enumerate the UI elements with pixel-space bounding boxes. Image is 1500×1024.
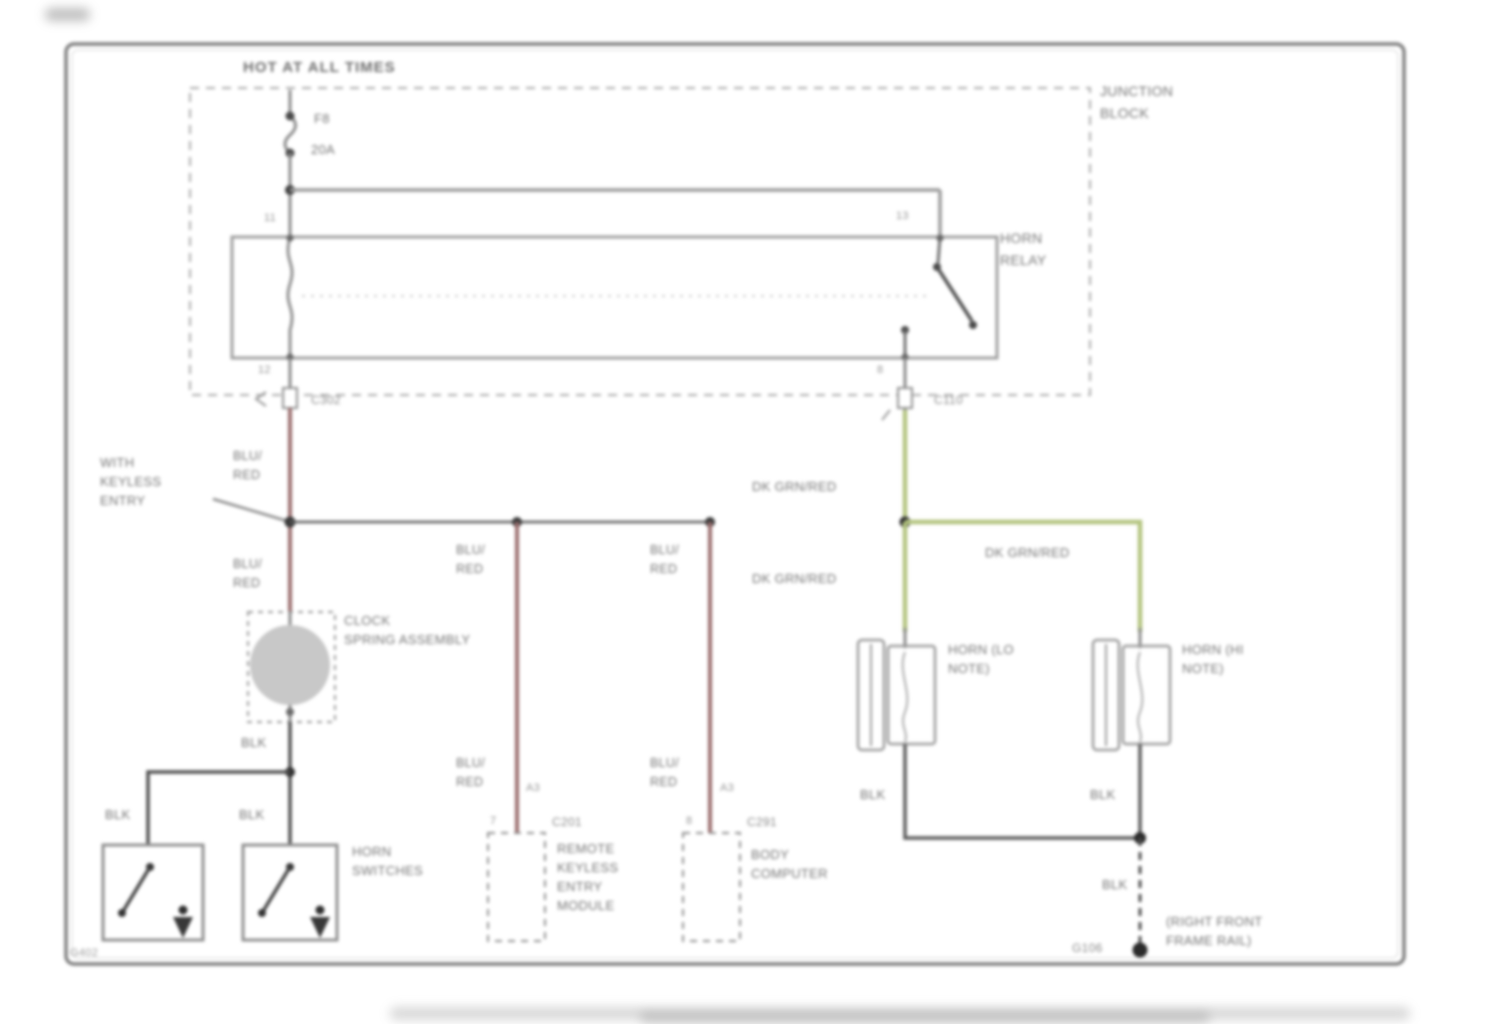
- fuse-rating-label: 20A: [311, 143, 335, 156]
- relay-pin-bottom-left-label: 12: [258, 365, 271, 376]
- wire-color-line1: BLU/: [650, 544, 679, 557]
- frame-rail-label: (RIGHT FRONT FRAME RAIL): [1166, 915, 1263, 947]
- horn-relay-label-line1: HORN: [1000, 231, 1046, 245]
- fuse-name-label: F8: [314, 112, 330, 125]
- wire-color-line1: BLU/: [233, 450, 262, 463]
- horn-switches-line1: HORN: [352, 845, 423, 858]
- horn-hi-note: [1093, 628, 1170, 750]
- horn-coil: [1138, 652, 1143, 742]
- wire-label-blk-switch-right: BLK: [239, 808, 264, 821]
- horn-feed-circuit: [900, 410, 1141, 632]
- scan-artifact: [45, 8, 90, 21]
- remote-keyless-entry-module-label: REMOTE KEYLESS ENTRY MODULE: [557, 842, 618, 912]
- connector-c110-terminal: [898, 388, 912, 408]
- relay-armature: [937, 267, 972, 321]
- wire-color-line2: RED: [233, 469, 262, 482]
- wiring-diagram-page: HOT AT ALL TIMES F8 20A JUNCTION BLOCK H…: [0, 0, 1500, 1024]
- connector-c302-terminal: [283, 388, 297, 408]
- horn-relay-label: HORN RELAY: [1000, 231, 1046, 267]
- clock-spring-line1: CLOCK: [344, 614, 470, 627]
- diagram-border-inner: [72, 50, 1398, 958]
- wire-label-blk-frame: BLK: [1102, 878, 1127, 891]
- ground-point: [1133, 943, 1148, 958]
- module-pin-right-label: 8: [686, 816, 692, 827]
- body-computer-line2: COMPUTER: [751, 867, 828, 880]
- horn-lo-note-label: HORN (LO NOTE): [948, 643, 1014, 675]
- wire-color-line2: RED: [650, 563, 679, 576]
- relay-pin-dot: [287, 235, 294, 242]
- switch-ground-contact: [316, 906, 325, 915]
- junction-block-outline: [190, 88, 1090, 395]
- label-leader-line: [213, 499, 287, 521]
- module-pin-left-label: 7: [490, 816, 496, 827]
- horn-lo-note: [858, 628, 935, 750]
- terminal-arrow: [882, 410, 890, 420]
- relay-box: [232, 237, 997, 358]
- switch-armature: [262, 867, 290, 913]
- connector-c110-label: C110: [934, 394, 963, 406]
- wire-label-blu-red-lower: BLU/ RED: [233, 558, 262, 589]
- wire-label-blu-red-rkem: BLU/ RED: [456, 757, 485, 788]
- wire-label-blu-red-branch2: BLU/ RED: [650, 544, 679, 575]
- with-keyless-line3: ENTRY: [100, 494, 161, 507]
- horn-body: [888, 646, 935, 744]
- connector-c302-label: C302: [311, 394, 341, 406]
- horn-hi-line1: HORN (HI: [1182, 643, 1244, 656]
- with-keyless-entry-label: WITH KEYLESS ENTRY: [100, 456, 161, 507]
- wire-color-line1: BLU/: [456, 757, 485, 770]
- relay-contact-b: [969, 321, 977, 329]
- junction-block-label: JUNCTION BLOCK: [1100, 84, 1173, 120]
- with-keyless-line1: WITH: [100, 456, 161, 469]
- switch-contact: [118, 909, 126, 917]
- wire-label-blu-red-branch1: BLU/ RED: [456, 544, 485, 575]
- wire-pin-label-bc: A3: [720, 783, 734, 794]
- junction-block-label-line1: JUNCTION: [1100, 84, 1173, 98]
- rkem-line4: MODULE: [557, 899, 618, 912]
- clock-spring-pin: [286, 708, 294, 716]
- horn-switches: [103, 722, 337, 940]
- junction-block-label-line2: BLOCK: [1100, 106, 1173, 120]
- wire-label-dk-grn-red-1: DK GRN/RED: [752, 480, 837, 493]
- wire-label-dk-grn-red-2: DK GRN/RED: [985, 546, 1070, 559]
- horn-relay-label-line2: RELAY: [1000, 253, 1046, 267]
- wire-color-line1: BLU/: [233, 558, 262, 571]
- body-computer-line1: BODY: [751, 848, 828, 861]
- wire-color-line1: BLU/: [456, 544, 485, 557]
- horn-hi-line2: NOTE): [1182, 662, 1244, 675]
- power-source-label: HOT AT ALL TIMES: [243, 60, 396, 75]
- power-feed: [285, 90, 940, 237]
- wire-label-blk-horn-right: BLK: [1090, 788, 1115, 801]
- switch-armature: [122, 867, 150, 913]
- horn-switches-label: HORN SWITCHES: [352, 845, 423, 877]
- horn-relay: [232, 235, 997, 361]
- wire-label-dk-grn-red-3: DK GRN/RED: [752, 572, 837, 585]
- switch-ground-contact: [179, 906, 188, 915]
- connector-c201-label: C201: [552, 816, 582, 828]
- relay-coil: [288, 237, 292, 358]
- horn-ground-circuit: [905, 744, 1148, 958]
- wire-label-blk-horn-left: BLK: [860, 788, 885, 801]
- wire-dk-grn-red-right-horn: [905, 522, 1140, 632]
- frame-rail-line1: (RIGHT FRONT: [1166, 915, 1263, 928]
- ground-symbol: [173, 917, 193, 938]
- wire-label-blu-red-upper: BLU/ RED: [233, 450, 262, 481]
- horn-hi-note-label: HORN (HI NOTE): [1182, 643, 1244, 675]
- horn-body: [1123, 646, 1170, 744]
- horn-lo-line1: HORN (LO: [948, 643, 1014, 656]
- wire-pin-label-rkem: A3: [526, 783, 540, 794]
- switch-contact: [258, 909, 266, 917]
- frame-rail-line2: FRAME RAIL): [1166, 934, 1263, 947]
- relay-pin-bottom-right-label: 8: [877, 365, 883, 376]
- junction-block-connectors: [256, 358, 912, 420]
- rkem-line2: KEYLESS: [557, 861, 618, 874]
- clock-spring-symbol: [250, 625, 330, 705]
- wire-color-line2: RED: [650, 776, 679, 789]
- wire-label-blk-clockspring: BLK: [241, 736, 266, 749]
- relay-pin-top-left-label: 11: [264, 213, 276, 224]
- with-keyless-line2: KEYLESS: [100, 475, 161, 488]
- horn-switches-line2: SWITCHES: [352, 864, 423, 877]
- horn-lo-line2: NOTE): [948, 662, 1014, 675]
- clock-spring-line2: SPRING ASSEMBLY: [344, 633, 470, 646]
- rkem-line3: ENTRY: [557, 880, 618, 893]
- wire-label-blu-red-bc: BLU/ RED: [650, 757, 679, 788]
- body-computer-box: [683, 833, 740, 941]
- ground-label-switch: G402: [70, 948, 98, 959]
- horn-coil: [903, 652, 908, 742]
- fuse-symbol: [285, 116, 296, 153]
- relay-pin-dot: [937, 235, 944, 242]
- relay-pin-top-right-label: 13: [896, 211, 909, 222]
- body-computer-label: BODY COMPUTER: [751, 848, 828, 880]
- wire-blk-switch-left: [148, 772, 290, 845]
- wire-color-line2: RED: [456, 563, 485, 576]
- connector-c291-label: C291: [747, 816, 777, 828]
- remote-keyless-entry-module-box: [488, 833, 545, 941]
- rkem-line1: REMOTE: [557, 842, 618, 855]
- clock-spring-assembly: [248, 612, 335, 722]
- wire-label-blk-switch-left: BLK: [105, 808, 130, 821]
- wire-color-line2: RED: [233, 577, 262, 590]
- ground-label-frame: G106: [1072, 942, 1103, 954]
- fuse-terminal-top: [286, 112, 295, 121]
- diagram-border: [66, 44, 1404, 964]
- scan-artifact: [640, 1012, 1210, 1023]
- wire-color-line2: RED: [456, 776, 485, 789]
- wiring-diagram-canvas: [0, 0, 1500, 1024]
- ground-symbol: [310, 917, 330, 938]
- clock-spring-label: CLOCK SPRING ASSEMBLY: [344, 614, 470, 646]
- wire-color-line1: BLU/: [650, 757, 679, 770]
- wiring-diagram: HOT AT ALL TIMES F8 20A JUNCTION BLOCK H…: [0, 0, 1500, 1024]
